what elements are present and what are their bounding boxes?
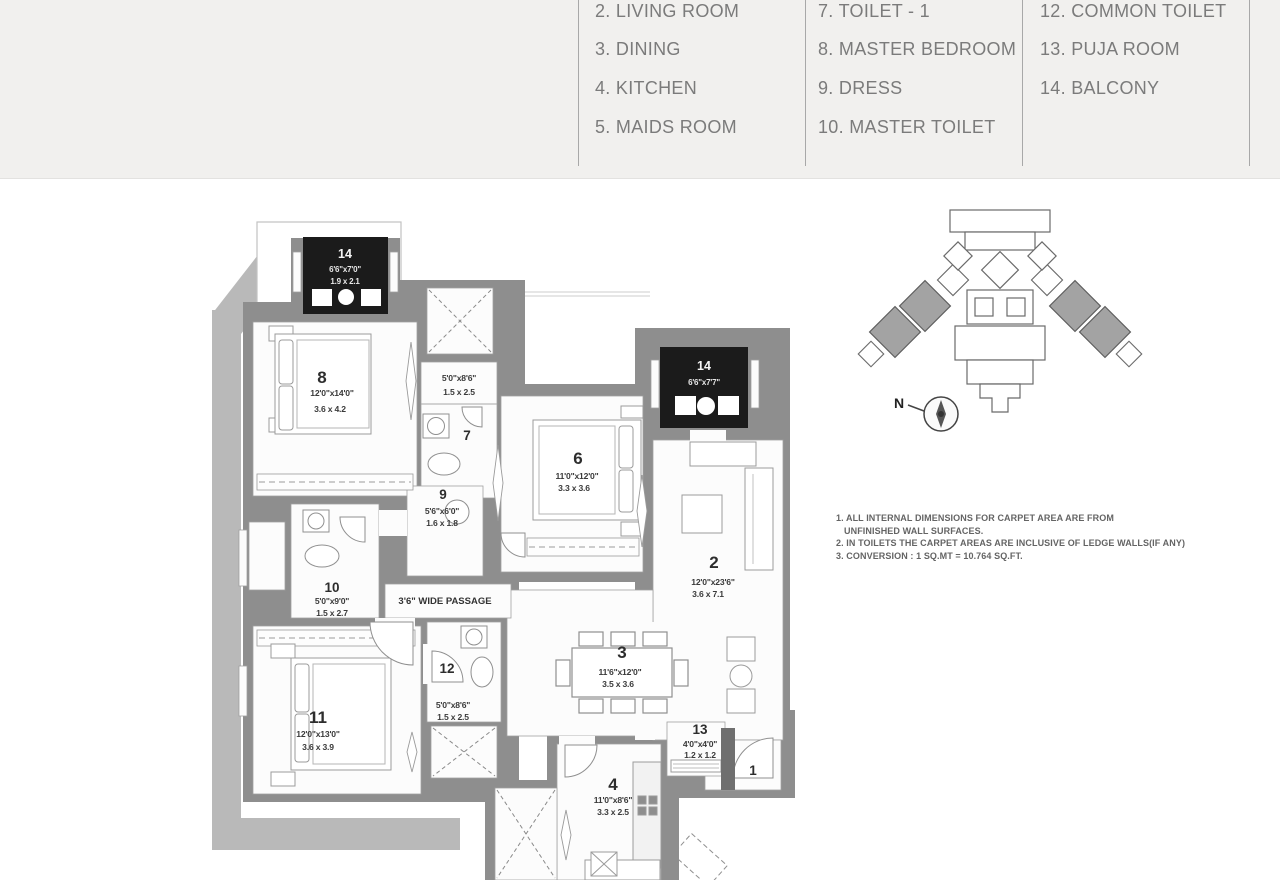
- room-13-dim-m: 1.2 x 1.2: [684, 750, 716, 760]
- plan-notes: 1. ALL INTERNAL DIMENSIONS FOR CARPET AR…: [836, 512, 1185, 562]
- legend-divider: [1022, 0, 1023, 166]
- room-3-number: 3: [617, 643, 626, 662]
- foyer-wall-stub: [721, 728, 735, 790]
- puja-shelf: [671, 760, 721, 772]
- legend-divider: [578, 0, 579, 166]
- room-8-dim-ft: 12'0"x14'0": [310, 388, 354, 398]
- room-11-dim-m: 3.6 x 3.9: [302, 742, 334, 752]
- room-3-dim-ft: 11'6"x12'0": [598, 667, 641, 677]
- room-2-number: 2: [709, 553, 718, 572]
- room-4-number: 4: [608, 775, 618, 794]
- service-duct: [673, 834, 727, 880]
- legend-column-3: 12. COMMON TOILET 13. PUJA ROOM 14. BALC…: [1040, 0, 1226, 108]
- room-10-dim-m: 1.5 x 2.7: [316, 608, 348, 618]
- balcony-right-box: 14 6'6"x7'7": [660, 347, 748, 428]
- legend-item: 8. MASTER BEDROOM: [818, 31, 1016, 70]
- key-plan-centre: [944, 210, 1056, 412]
- north-arrow: N: [894, 395, 958, 431]
- room-6-number: 6: [573, 449, 582, 468]
- key-plan: N: [855, 198, 1145, 438]
- balcony-top-dim-m: 1.9 x 2.1: [330, 277, 360, 286]
- note-line: 1. ALL INTERNAL DIMENSIONS FOR CARPET AR…: [836, 512, 1185, 525]
- room-4-dim-m: 3.3 x 2.5: [597, 807, 629, 817]
- room-9-dim-ft: 5'6"x6'0": [425, 506, 459, 516]
- legend-item: 14. BALCONY: [1040, 69, 1226, 108]
- legend-item: 9. DRESS: [818, 69, 1016, 108]
- room-9-dim-m: 1.6 x 1.8: [426, 518, 458, 528]
- legend-item: 2. LIVING ROOM: [595, 0, 739, 31]
- room-11-number: 11: [309, 708, 327, 727]
- ledge-niche: [249, 522, 285, 590]
- room-7-dim-ft: 5'0"x8'6": [442, 373, 476, 383]
- room-3-dim-m: 3.5 x 3.6: [602, 679, 634, 689]
- balcony-top-box: 14 6'6"x7'0" 1.9 x 2.1: [303, 237, 388, 314]
- legend-item: 4. KITCHEN: [595, 69, 739, 108]
- note-line: UNFINISHED WALL SURFACES.: [836, 525, 1185, 538]
- room-1-number: 1: [749, 763, 757, 778]
- room-8-number: 8: [317, 368, 326, 387]
- legend-item: 5. MAIDS ROOM: [595, 108, 739, 147]
- note-line: 3. CONVERSION : 1 SQ.MT = 10.764 SQ.FT.: [836, 550, 1185, 563]
- legend-column-2: 7. TOILET - 1 8. MASTER BEDROOM 9. DRESS…: [818, 0, 1016, 146]
- legend-column-1: 2. LIVING ROOM 3. DINING 4. KITCHEN 5. M…: [595, 0, 739, 146]
- balcony-top-dim-ft: 6'6"x7'0": [329, 265, 361, 274]
- room-13-number: 13: [692, 722, 708, 737]
- room-12-dim-m: 1.5 x 2.5: [437, 712, 469, 722]
- floor-plan: 14 6'6"x7'0" 1.9 x 2.1 14 6'6"x7'7" 8 12…: [195, 192, 805, 880]
- legend-item: 3. DINING: [595, 31, 739, 70]
- room-legend-band: 2. LIVING ROOM 3. DINING 4. KITCHEN 5. M…: [0, 0, 1280, 179]
- legend-item: 7. TOILET - 1: [818, 0, 1016, 31]
- room-10-number: 10: [324, 580, 339, 595]
- legend-divider: [805, 0, 806, 166]
- balcony-right-number: 14: [697, 359, 711, 373]
- room-10-dim-ft: 5'0"x9'0": [315, 596, 349, 606]
- note-line: 2. IN TOILETS THE CARPET AREAS ARE INCLU…: [836, 537, 1185, 550]
- room-8-dim-m: 3.6 x 4.2: [314, 404, 346, 414]
- balcony-top-number: 14: [338, 247, 352, 261]
- room-6-dim-m: 3.3 x 3.6: [558, 483, 590, 493]
- room-9-number: 9: [439, 487, 447, 502]
- room-6-dim-ft: 11'0"x12'0": [555, 471, 598, 481]
- room-7-dim-m: 1.5 x 2.5: [443, 387, 475, 397]
- room-4-dim-ft: 11'0"x8'6": [594, 795, 633, 805]
- room-11-dim-ft: 12'0"x13'0": [296, 729, 340, 739]
- room-12-dim-ft: 5'0"x8'6": [436, 700, 470, 710]
- balcony-right-dim-ft: 6'6"x7'7": [688, 378, 720, 387]
- room-7-number: 7: [463, 428, 471, 443]
- room-12-number: 12: [439, 661, 454, 676]
- room-13-dim-ft: 4'0"x4'0": [683, 739, 717, 749]
- legend-item: 10. MASTER TOILET: [818, 108, 1016, 147]
- passage-label: 3'6" WIDE PASSAGE: [398, 596, 491, 607]
- north-label: N: [894, 395, 904, 411]
- room-2-dim-m: 3.6 x 7.1: [692, 589, 724, 599]
- legend-item: 13. PUJA ROOM: [1040, 31, 1226, 70]
- room-2-dim-ft: 12'0"x23'6": [691, 577, 735, 587]
- legend-item: 12. COMMON TOILET: [1040, 0, 1226, 31]
- legend-divider: [1249, 0, 1250, 166]
